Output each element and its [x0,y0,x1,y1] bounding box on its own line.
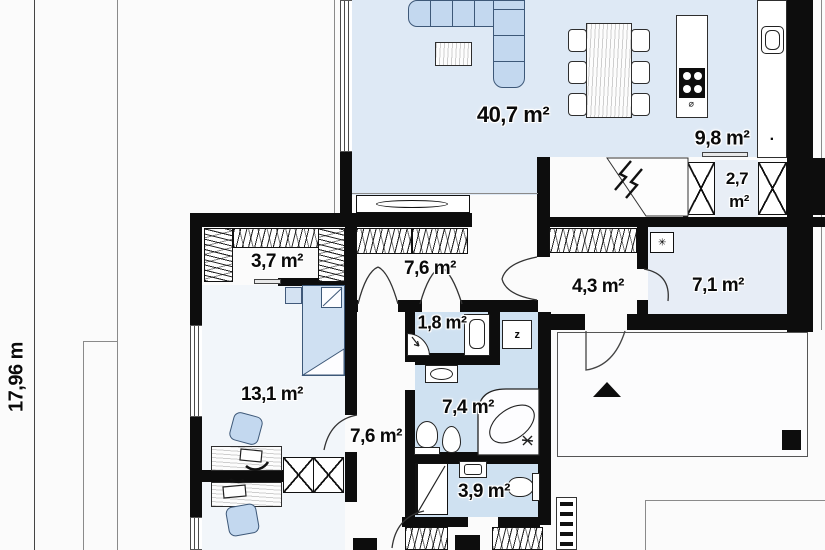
washbasin-bowl [430,368,453,380]
toilet [508,477,534,497]
wc-shower-inner [469,319,485,349]
burner [694,72,702,80]
room-area-label-living: 40,7 m² [477,102,549,128]
stove-burner [664,189,676,201]
burner [683,72,691,80]
wardrobe-cabinet [204,228,233,282]
room-area-label-pantry-line2: m² [729,192,749,212]
stove-burner [664,202,676,214]
burner [694,85,702,93]
sideboard-bowl [376,200,448,208]
room-area-label-wardrobe: 3,7 m² [251,251,303,273]
double-door-arc [502,257,537,300]
dining-chair [568,29,587,52]
hall-wardrobe [356,228,412,254]
pillow [321,287,342,308]
wall [460,300,538,312]
sofa-corner [493,0,525,88]
room-area-label-utility: 7,1 m² [692,275,744,297]
room-area-label-shower: 3,9 m² [458,481,510,503]
dining-chair [631,29,650,52]
wall [190,213,472,227]
bedroom-shelf [313,457,344,493]
room-area-label-corridor: 7,6 m² [350,426,402,448]
wardrobe-cabinet [233,228,323,248]
wall [345,452,357,502]
floor-plan: ⌀ z ✳ [0,0,825,550]
bidet [442,426,461,453]
room-area-label-vestibule: 4,3 m² [572,276,624,298]
office-chair [225,503,261,538]
window [190,517,202,550]
wall [340,152,352,214]
burner [683,85,691,93]
wall [455,535,480,550]
wall [627,314,812,330]
dining-chair [631,61,650,84]
room-area-label-bedroom: 13,1 m² [241,384,303,406]
wall [190,417,202,517]
wall [345,302,357,415]
nightstand [285,287,302,304]
washbasin-bowl [464,464,482,475]
room-area-label-bathroom: 7,4 m² [442,397,494,419]
pantry-cabinet [758,162,787,215]
entrance-porch [557,332,808,457]
washing-machine-symbol: z [515,329,520,341]
pantry-cabinet [687,162,715,215]
dining-chair [631,93,650,116]
room-area-label-hall: 7,6 m² [404,258,456,280]
living-room-floor-lower [352,157,538,195]
lower-wardrobe [405,527,448,550]
toilet-tank [532,473,540,501]
lower-wardrobe [492,527,543,550]
dining-chair [568,61,587,84]
floor-edge-line [352,193,538,194]
door-arc [358,267,398,304]
fireplace-flame-icon [626,169,642,198]
toilet [416,421,438,448]
hall-wardrobe [412,228,468,254]
wall [538,314,585,330]
vestibule-wardrobe [549,228,637,253]
wall [637,227,648,269]
kitchen-sink-basin [765,30,780,50]
terrace-line [334,0,335,213]
window [190,325,202,417]
dining-chair [568,93,587,116]
wall [202,470,283,482]
kitchen-dot: · [770,131,775,149]
entrance-steps-treads [560,501,573,546]
wall [398,300,422,312]
terrace-line [645,500,646,550]
wall [402,517,468,527]
terrace-line [117,0,118,550]
desk [211,446,282,471]
terrace-line [645,500,825,501]
room-area-label-kitchen: 9,8 m² [695,128,750,151]
boiler-symbol: ✳ [658,238,666,249]
dining-table [586,23,632,118]
shower [415,463,448,515]
dimension-label: 17,96 m [6,342,29,412]
wall [813,158,825,215]
window [340,0,352,152]
coffee-table [435,42,472,66]
dimension-line [34,0,35,550]
porch-column [782,430,801,450]
pantry-door [702,152,748,157]
wall [537,217,825,227]
terrace-line [83,341,118,342]
wardrobe-cabinet [318,228,345,282]
sliding-door [254,279,281,284]
wall [190,227,202,325]
hob-diameter-symbol: ⌀ [689,99,694,110]
toilet-tank [414,447,440,455]
room-area-label-pantry-line1: 2,7 [726,169,748,189]
fireplace-flame-icon [615,161,631,190]
room-area-label-wc: 1,8 m² [417,313,466,334]
sofa [408,0,497,27]
terrace-line [83,341,84,550]
wall [353,538,377,550]
wall [498,517,540,527]
wall [787,0,813,332]
bedroom-shelf [283,457,314,493]
